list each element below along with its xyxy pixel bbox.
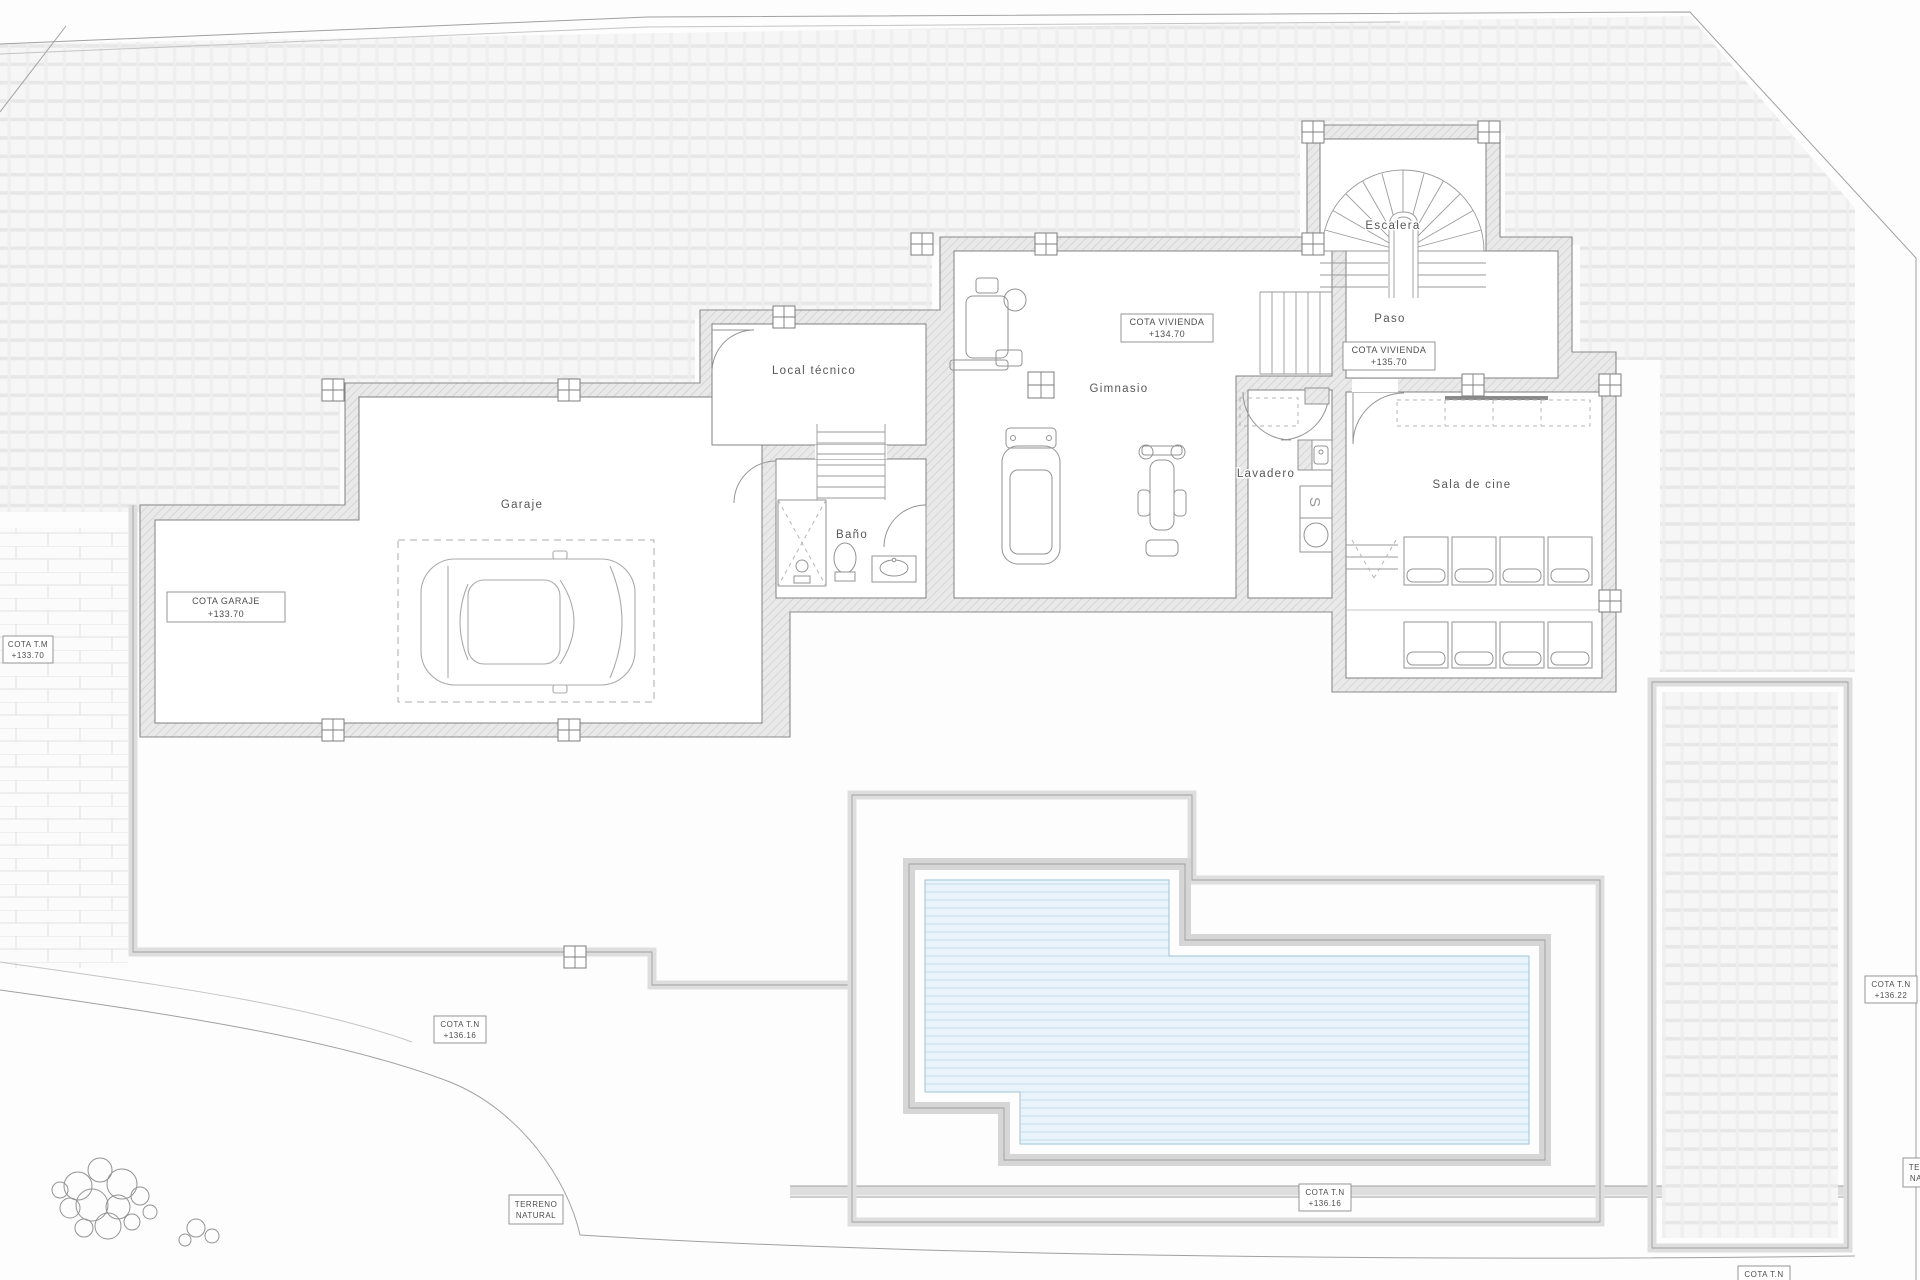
label-sala-de-cine: Sala de cine (1433, 479, 1512, 491)
retaining-wall-bricks (0, 528, 128, 968)
column-marker (1599, 374, 1621, 396)
cota-garaje-value: +133.70 (208, 609, 244, 619)
cota-tm-value: +133.70 (12, 651, 45, 660)
label-lavadero: Lavadero (1237, 468, 1295, 480)
stairwell-opening (815, 445, 887, 459)
level-box-cota-tm: COTA T.M +133.70 (3, 636, 53, 663)
level-box-cota-tn-este: COTA T.N +136.22 (1865, 976, 1917, 1003)
cota-vivienda-1-value: +134.70 (1149, 329, 1185, 339)
level-box-cota-vivienda-gimnasio: COTA VIVIENDA +134.70 (1121, 314, 1213, 342)
sala-door-opening (1352, 379, 1398, 392)
laundry-sink-drainer (1298, 440, 1312, 470)
pool (909, 864, 1545, 1160)
column-marker (564, 946, 586, 968)
site-label-terreno-natural-oeste: TERRENO NATURAL (509, 1195, 563, 1224)
column-marker (1478, 121, 1500, 143)
terreno-2-line2: NATURAL (1910, 1174, 1920, 1183)
sink-tap (892, 558, 896, 562)
cota-vivienda-2-value: +135.70 (1371, 357, 1407, 367)
terreno-2-line1: TERRENO (1909, 1163, 1920, 1172)
dryer-letter: S (1306, 497, 1323, 507)
floor-plan-canvas: S (0, 0, 1920, 1280)
column-marker (1302, 233, 1324, 255)
level-box-cota-tn-piscina: COTA T.N +136.16 (1299, 1184, 1351, 1211)
column-marker (1035, 233, 1057, 255)
terrace-se-paving (1662, 692, 1838, 1238)
level-box-cota-garaje: COTA GARAJE +133.70 (167, 592, 285, 622)
terreno-1-line1: TERRENO (515, 1200, 558, 1209)
label-garaje: Garaje (501, 499, 543, 511)
cota-tn-2-value: +136.16 (1309, 1199, 1342, 1208)
site-label-terreno-natural-este: TERRENO NATURAL (1903, 1158, 1920, 1187)
column-marker (322, 379, 344, 401)
cota-tn-3-name: COTA T.N (1871, 980, 1910, 989)
column-marker (1462, 374, 1484, 396)
column-marker (773, 306, 795, 328)
cota-tn-1-name: COTA T.N (440, 1020, 479, 1029)
tree-icon (52, 1158, 219, 1246)
label-paso: Paso (1374, 313, 1405, 325)
cota-vivienda-2-name: COTA VIVIENDA (1352, 345, 1427, 355)
label-gimnasio: Gimnasio (1090, 383, 1149, 395)
terrain-contour-2 (0, 962, 412, 1042)
pool-water (925, 880, 1529, 1144)
cota-tn-2-name: COTA T.N (1305, 1188, 1344, 1197)
label-escalera: Escalera (1365, 220, 1420, 232)
column-marker (322, 719, 344, 741)
level-box-cota-vivienda-paso: COTA VIVIENDA +135.70 (1343, 342, 1435, 370)
floor-plan-sheet: S (0, 0, 1920, 1280)
column-marker (558, 379, 580, 401)
column-marker (1302, 121, 1324, 143)
room-sala-de-cine (1346, 392, 1602, 678)
laundry-cabinet (1305, 388, 1329, 404)
cota-tn-4-name: COTA T.N (1744, 1270, 1783, 1279)
cota-tm-name: COTA T.M (8, 640, 48, 649)
terrain-contour-1 (0, 990, 580, 1235)
column-marker-interior (1028, 372, 1054, 398)
level-box-cota-tn-borde: COTA T.N (1738, 1266, 1790, 1280)
level-box-cota-tn-terraza: COTA T.N +136.16 (434, 1016, 486, 1043)
column-marker (558, 719, 580, 741)
column-marker (1599, 590, 1621, 612)
room-local-tecnico (712, 324, 926, 445)
terreno-1-line2: NATURAL (516, 1211, 556, 1220)
laundry-sink-tap (1319, 450, 1323, 454)
toilet-tank (835, 572, 855, 581)
cota-tn-1-value: +136.16 (444, 1031, 477, 1040)
cota-vivienda-1-name: COTA VIVIENDA (1130, 317, 1205, 327)
cota-garaje-name: COTA GARAJE (192, 596, 260, 606)
toilet-icon (834, 543, 856, 573)
label-local-tecnico: Local técnico (772, 365, 856, 377)
label-bano: Baño (836, 529, 868, 541)
cota-tn-3-value: +136.22 (1875, 991, 1908, 1000)
column-marker (911, 233, 933, 255)
